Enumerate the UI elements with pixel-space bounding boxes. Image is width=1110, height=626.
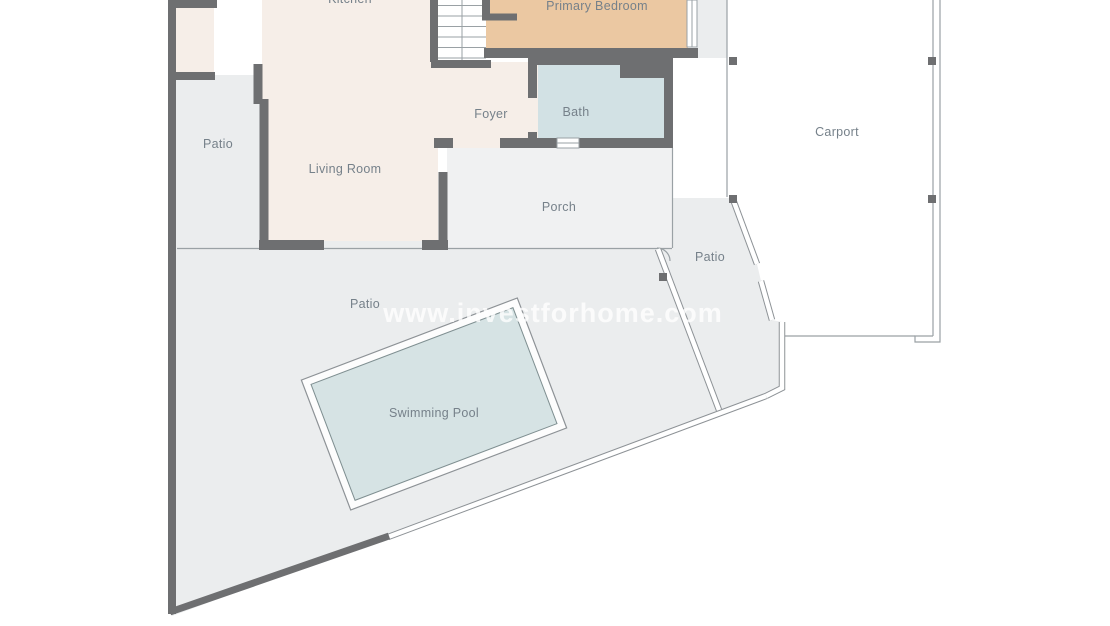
label-carport: Carport [815, 125, 859, 139]
label-patio-left: Patio [203, 137, 233, 151]
floor-plan-drawing: Kitchen Primary Bedroom Patio Living Roo… [0, 0, 1110, 626]
carport-right-wall [915, 0, 940, 342]
label-primary-bedroom: Primary Bedroom [546, 0, 648, 13]
label-porch: Porch [542, 200, 576, 214]
porch-floor [447, 148, 673, 248]
living-kitchen-floor [262, 0, 438, 241]
label-bath: Bath [563, 105, 590, 119]
label-living-room: Living Room [309, 162, 382, 176]
stairs-floor [438, 0, 482, 61]
label-patio-bottom: Patio [350, 297, 380, 311]
label-patio-middle: Patio [695, 250, 725, 264]
bedroom-window [687, 0, 697, 47]
foyer-floor [430, 62, 538, 148]
side-strip [697, 0, 727, 58]
label-foyer: Foyer [474, 107, 507, 121]
storage-room-floor [176, 4, 214, 76]
label-kitchen: Kitchen [328, 0, 372, 6]
floor-plan-canvas: Kitchen Primary Bedroom Patio Living Roo… [0, 0, 1110, 626]
bath-window [557, 138, 579, 148]
label-swimming-pool: Swimming Pool [389, 406, 479, 420]
watermark-text: www.investforhome.com [382, 298, 723, 328]
